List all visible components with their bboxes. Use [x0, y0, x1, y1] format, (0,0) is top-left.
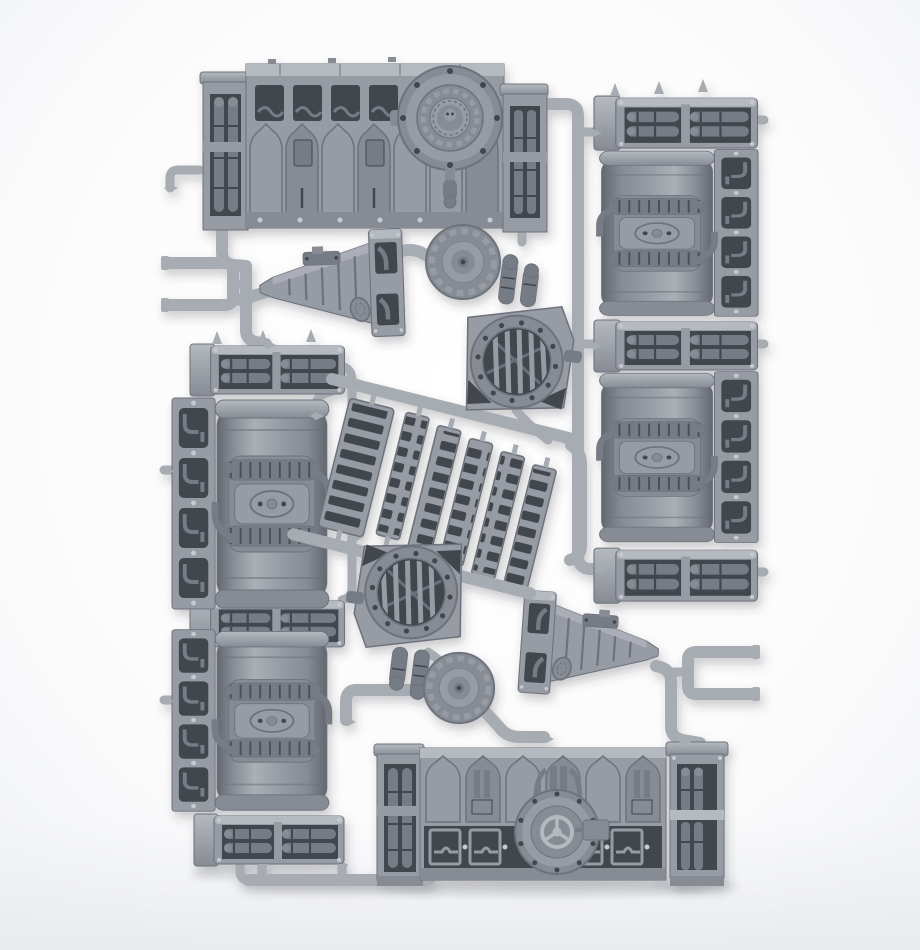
- pipe-crate-right-middle: [594, 320, 758, 372]
- pipe-crate-right-top: [594, 96, 758, 150]
- sprue-frame: [160, 57, 764, 886]
- pipe-crate-left-top: [190, 344, 345, 396]
- pipe-crate-left-bottom: [194, 814, 344, 866]
- cog-disc-lower: [424, 653, 494, 723]
- tank-right-lower: [600, 372, 758, 543]
- sprue-photo-svg: [0, 0, 920, 950]
- tank-left-upper: [172, 398, 329, 609]
- product-photo-sprue: [0, 0, 920, 950]
- wall-section-top: [200, 57, 548, 232]
- tank-right-upper: [600, 150, 758, 317]
- cog-disc-upper: [426, 225, 500, 299]
- wall-section-bottom: [374, 742, 728, 886]
- pipe-crate-right-bottom: [594, 548, 758, 603]
- tank-left-lower: [172, 630, 329, 811]
